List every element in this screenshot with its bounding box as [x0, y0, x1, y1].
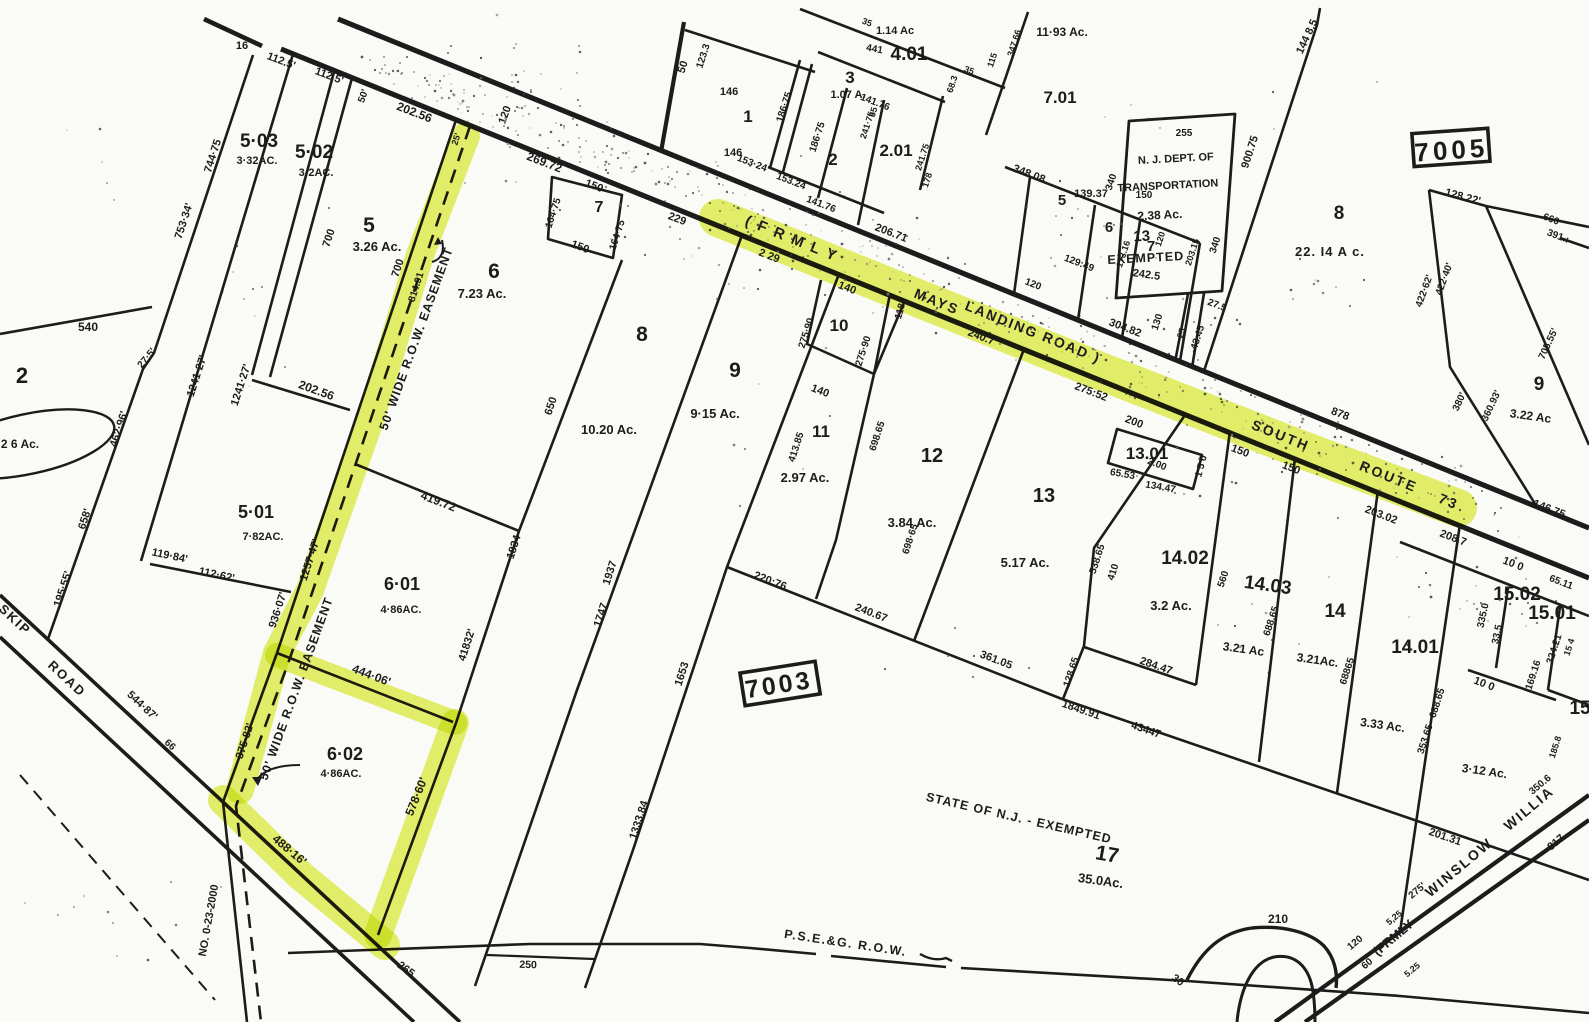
- svg-text:2.38 Ac.: 2.38 Ac.: [1137, 207, 1183, 223]
- svg-text:1.14 Ac: 1.14 Ac: [876, 25, 914, 37]
- svg-text:3·2AC.: 3·2AC.: [299, 167, 334, 179]
- svg-text:14.01: 14.01: [1391, 637, 1439, 658]
- svg-text:250: 250: [519, 959, 537, 972]
- svg-text:7.01: 7.01: [1043, 88, 1076, 107]
- svg-text:15: 15: [1569, 698, 1589, 719]
- svg-text:2.97 Ac.: 2.97 Ac.: [781, 470, 830, 485]
- svg-text:13: 13: [1033, 485, 1055, 507]
- svg-text:5·02: 5·02: [295, 142, 333, 163]
- svg-text:7·82AC.: 7·82AC.: [243, 531, 284, 543]
- svg-text:15.02: 15.02: [1493, 584, 1541, 605]
- svg-text:146: 146: [720, 86, 738, 98]
- svg-text:7.23 Ac.: 7.23 Ac.: [458, 286, 507, 301]
- svg-text:7005: 7005: [1413, 132, 1489, 167]
- svg-text:9: 9: [1534, 374, 1545, 395]
- svg-text:15.01: 15.01: [1528, 603, 1576, 624]
- svg-text:5.17 Ac.: 5.17 Ac.: [1001, 555, 1050, 570]
- svg-text:10.20 Ac.: 10.20 Ac.: [581, 422, 637, 437]
- svg-text:139.37: 139.37: [1074, 188, 1108, 200]
- svg-text:8: 8: [1334, 203, 1345, 224]
- svg-text:2: 2: [16, 363, 28, 388]
- svg-text:3·32AC.: 3·32AC.: [237, 155, 278, 167]
- svg-text:6·01: 6·01: [384, 574, 420, 594]
- svg-text:5·01: 5·01: [238, 502, 274, 522]
- svg-text:6: 6: [488, 260, 500, 283]
- svg-text:8: 8: [636, 323, 648, 346]
- svg-text:14: 14: [1324, 601, 1346, 622]
- svg-text:3: 3: [845, 68, 854, 87]
- svg-text:17: 17: [1094, 841, 1121, 868]
- svg-text:5: 5: [363, 214, 375, 237]
- svg-text:540: 540: [78, 320, 98, 334]
- svg-text:6·02: 6·02: [327, 744, 363, 764]
- svg-text:9·15 Ac.: 9·15 Ac.: [690, 406, 739, 421]
- svg-text:3.2 Ac.: 3.2 Ac.: [1150, 598, 1191, 613]
- svg-text:4·86AC.: 4·86AC.: [381, 604, 422, 616]
- svg-text:4·86AC.: 4·86AC.: [321, 768, 362, 780]
- svg-text:2 6 Ac.: 2 6 Ac.: [1, 437, 39, 451]
- svg-text:5: 5: [1058, 192, 1066, 209]
- svg-text:22. I4 A c.: 22. I4 A c.: [1295, 244, 1365, 259]
- svg-text:7: 7: [595, 199, 604, 216]
- svg-text:2: 2: [828, 150, 837, 169]
- svg-text:11·93 Ac.: 11·93 Ac.: [1036, 25, 1088, 39]
- svg-text:10: 10: [830, 316, 849, 335]
- svg-text:12: 12: [921, 445, 943, 467]
- svg-text:6: 6: [1105, 219, 1113, 236]
- svg-text:1: 1: [743, 107, 752, 126]
- svg-text:4.01: 4.01: [891, 44, 928, 65]
- svg-text:13: 13: [1133, 228, 1151, 246]
- svg-text:16: 16: [236, 40, 248, 52]
- svg-text:2.01: 2.01: [879, 141, 912, 160]
- svg-text:14.02: 14.02: [1161, 548, 1209, 569]
- svg-text:255: 255: [1176, 128, 1193, 139]
- svg-text:11: 11: [812, 422, 830, 441]
- svg-text:210: 210: [1268, 912, 1288, 926]
- svg-text:9: 9: [729, 359, 741, 382]
- svg-text:5·03: 5·03: [240, 131, 278, 152]
- svg-text:3.26 Ac.: 3.26 Ac.: [353, 239, 402, 254]
